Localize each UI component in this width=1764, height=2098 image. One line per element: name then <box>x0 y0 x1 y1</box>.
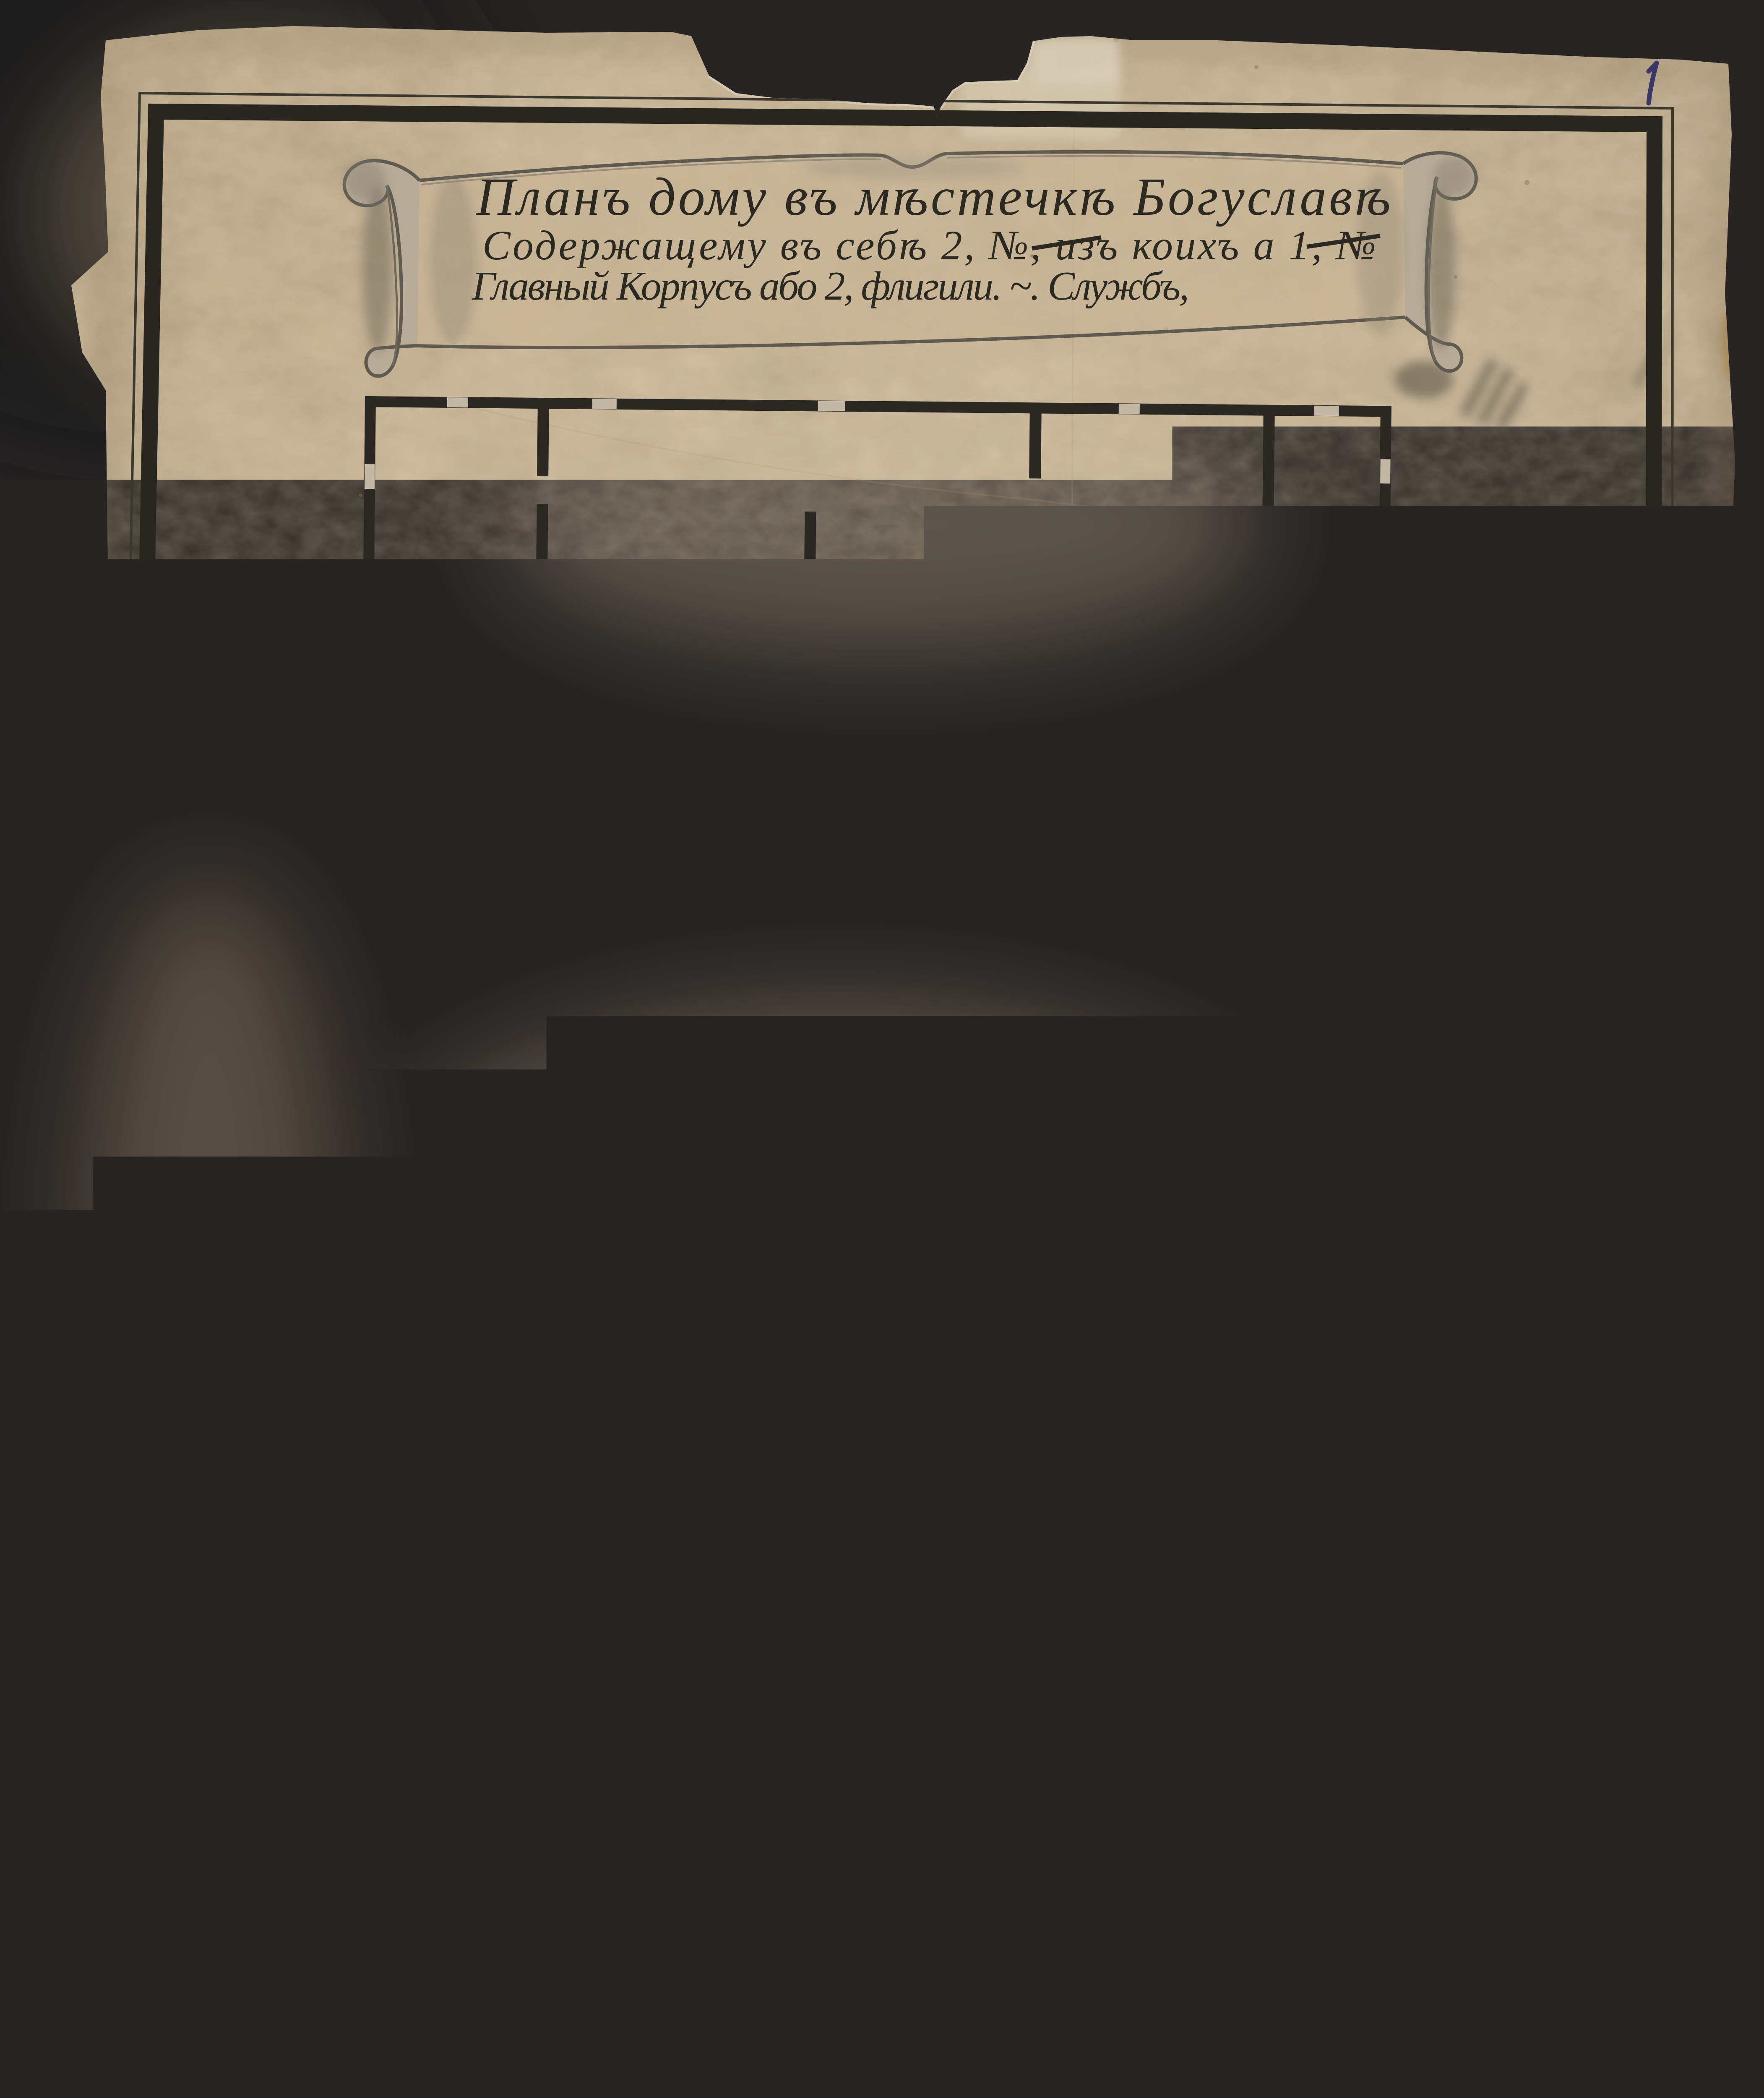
svg-text:Планъ дому въ мѣстечкѣ Бог: Планъ дому въ мѣстечкѣ Богуславѣ <box>475 167 1391 227</box>
svg-text:Содержащему въ себѣ 2, №,: Содержащему въ себѣ 2, №, изъ коихъ а 1,… <box>482 222 1376 269</box>
svg-text:Главный Корпусъ або 2, флиги: Главный Корпусъ або 2, флигили. ~. Служб… <box>472 264 1189 309</box>
